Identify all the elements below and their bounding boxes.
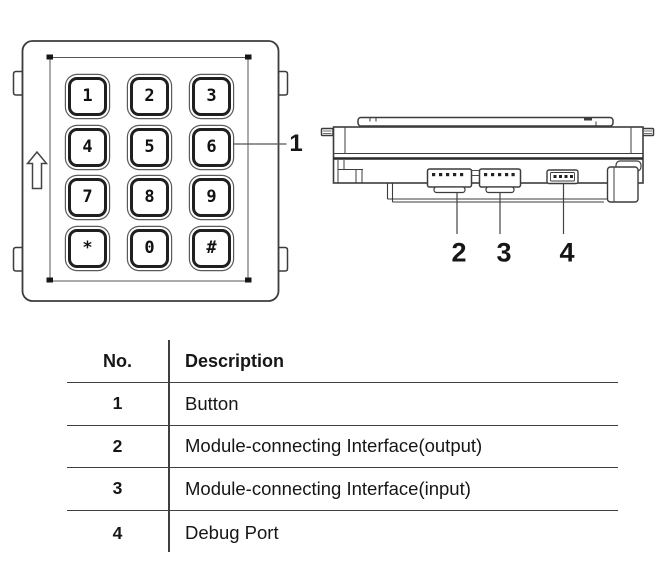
keypad-button-7: 7 — [68, 178, 107, 217]
row-description: Module-connecting Interface(output) — [168, 435, 618, 457]
parts-table: No. Description 1Button2Module-connectin… — [67, 340, 618, 556]
screw-tab-left — [322, 129, 334, 136]
side-lid — [358, 118, 613, 127]
side-view — [322, 118, 654, 235]
keypad-grid: 123456789*0# — [68, 77, 231, 268]
module-connector-output — [428, 169, 472, 193]
row-description: Button — [168, 393, 618, 415]
keypad-button-2: 2 — [130, 77, 169, 116]
callout-label-3: 3 — [496, 240, 511, 267]
keypad-button-0: 0 — [130, 229, 169, 268]
keypad-button-pound: # — [192, 229, 231, 268]
keypad-button-6: 6 — [192, 128, 231, 167]
module-connector-input — [480, 169, 521, 193]
table-row: 4Debug Port — [67, 511, 618, 556]
table-row: 1Button — [67, 383, 618, 426]
row-description: Debug Port — [168, 522, 618, 544]
row-number: 2 — [67, 436, 168, 457]
header-no: No. — [67, 351, 168, 372]
table-column-divider — [168, 340, 170, 552]
callout-label-4: 4 — [559, 240, 574, 267]
table-row: 3Module-connecting Interface(input) — [67, 468, 618, 511]
row-number: 4 — [67, 523, 168, 544]
table-header-row: No. Description — [67, 340, 618, 383]
row-number: 1 — [67, 393, 168, 414]
keypad-button-1: 1 — [68, 77, 107, 116]
diagram-canvas: 123456789*0# 1 2 3 4 No. Description 1Bu… — [0, 0, 665, 573]
parts-table-body: 1Button2Module-connecting Interface(outp… — [67, 383, 618, 556]
keypad-button-star: * — [68, 229, 107, 268]
keypad-button-5: 5 — [130, 128, 169, 167]
callout-label-2: 2 — [451, 240, 466, 267]
header-description: Description — [168, 351, 618, 372]
table-row: 2Module-connecting Interface(output) — [67, 426, 618, 469]
keypad-button-8: 8 — [130, 178, 169, 217]
callout-label-1: 1 — [289, 132, 302, 156]
right-foot-bracket — [608, 167, 639, 202]
row-number: 3 — [67, 478, 168, 499]
row-description: Module-connecting Interface(input) — [168, 478, 618, 500]
debug-port — [547, 170, 578, 184]
keypad-button-3: 3 — [192, 77, 231, 116]
keypad-button-4: 4 — [68, 128, 107, 167]
keypad-button-9: 9 — [192, 178, 231, 217]
